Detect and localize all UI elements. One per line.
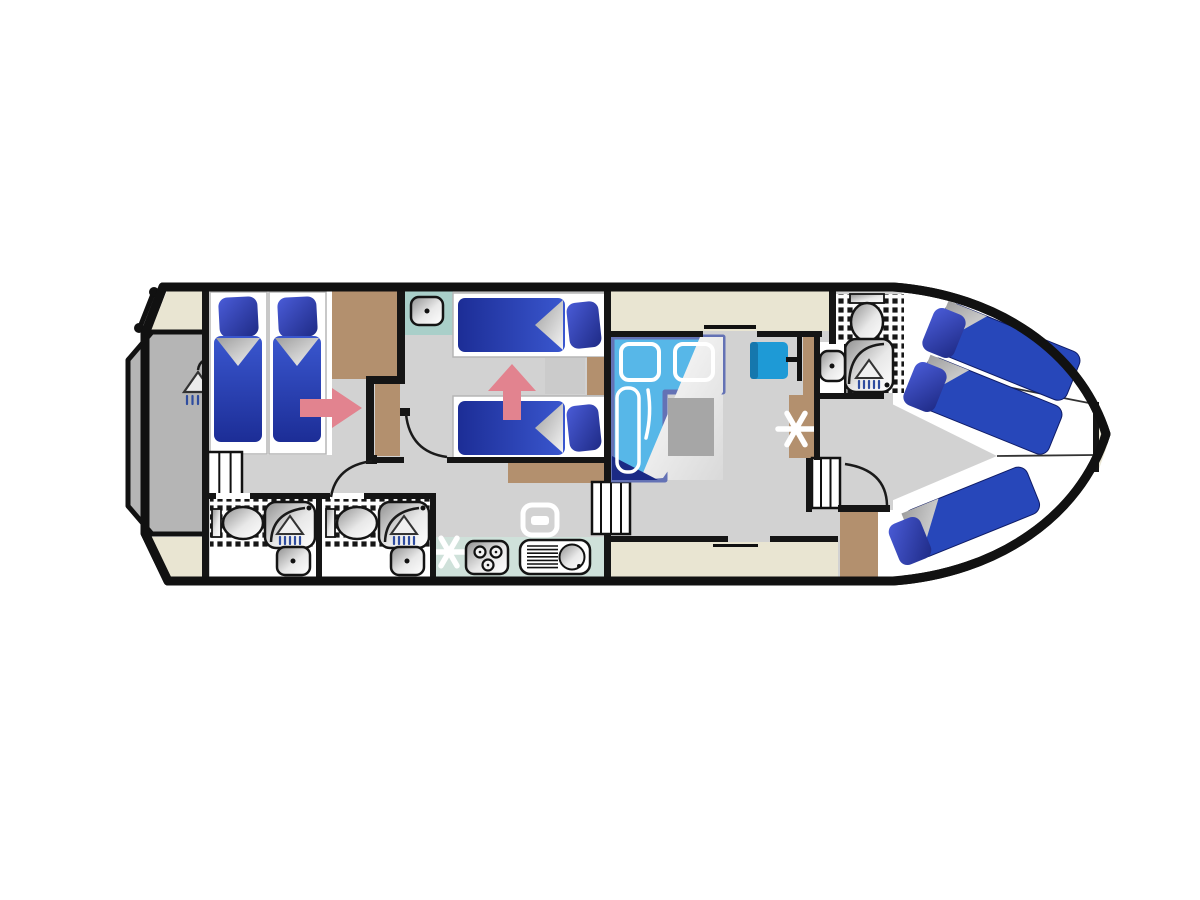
cabinet <box>587 357 604 395</box>
floorplan-stage <box>0 0 1200 900</box>
single-bed <box>269 292 326 454</box>
washbasin <box>411 297 443 325</box>
toilet <box>337 507 377 539</box>
toilet <box>223 507 263 539</box>
hob-3-burner <box>466 541 508 574</box>
steps <box>592 482 630 534</box>
wardrobe <box>840 512 878 577</box>
steps <box>208 452 242 496</box>
single-bed <box>453 396 605 460</box>
wardrobe <box>332 291 397 379</box>
window-marker <box>704 325 756 329</box>
sideboard <box>508 463 604 483</box>
toilet-cistern <box>850 294 884 303</box>
bathroom-aft-2 <box>322 499 430 577</box>
sink-with-drainer <box>520 540 590 574</box>
helm-console <box>803 335 814 395</box>
side-deck-bottom <box>610 542 838 577</box>
toilet-cistern <box>212 509 221 537</box>
wardrobe <box>375 384 400 456</box>
helm-seat <box>750 342 788 379</box>
shower-cubicle <box>379 502 429 548</box>
washbasin <box>391 547 424 575</box>
washbasin <box>277 547 310 575</box>
shower-cubicle <box>845 339 893 392</box>
shower-cubicle <box>265 502 315 548</box>
nightstand <box>545 358 585 394</box>
toilet <box>851 303 883 341</box>
bathroom-aft-1 <box>210 499 316 577</box>
washbasin <box>820 351 845 381</box>
toilet-cistern <box>326 509 335 537</box>
saloon-table <box>668 398 714 456</box>
single-bed <box>453 293 605 357</box>
single-bed <box>210 292 267 454</box>
steps <box>812 458 840 508</box>
window-marker <box>713 544 758 547</box>
boat-floorplan <box>0 0 1200 900</box>
